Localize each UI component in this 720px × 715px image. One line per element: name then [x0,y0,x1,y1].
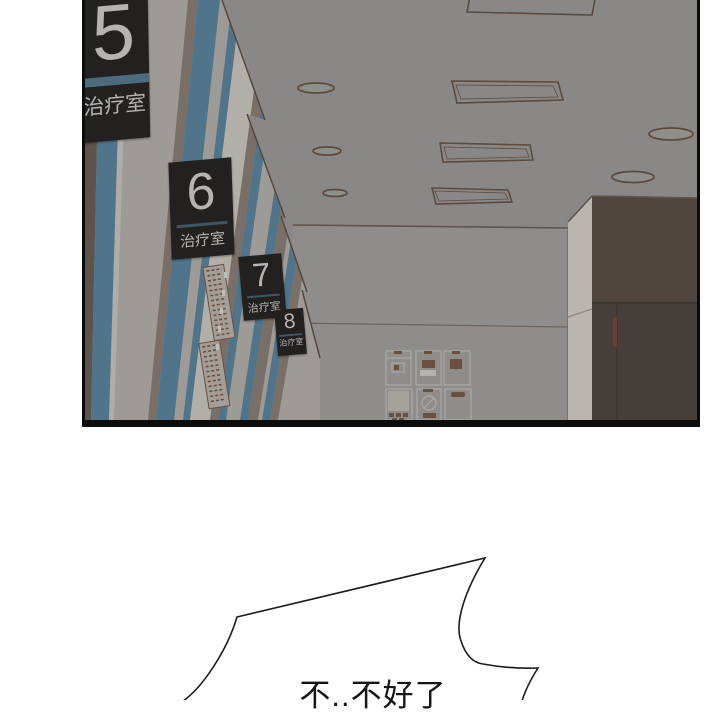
right-brown-wall-lower [592,303,697,420]
door-edge-mark [613,317,617,347]
ceiling-downlight-icon [313,147,341,155]
ceiling-downlight-icon [612,172,654,183]
door-sign-5: 5 治疗室 [82,0,150,143]
door-sign-label: 治疗室 [82,86,150,122]
door-sign-number: 6 [168,157,233,222]
door-sign-number: 5 [82,0,149,77]
comic-page: 5 治疗室 6 治疗室 7 治疗室 8 治疗室 不..不好了 [0,0,720,700]
comic-panel-corridor: 5 治疗室 6 治疗室 7 治疗室 8 治疗室 [82,0,700,427]
door-sign-number: 8 [274,308,305,334]
door-sign-8: 8 治疗室 [274,308,307,356]
ceiling-downlight-icon [323,190,347,197]
corner-wall-highlight [568,196,592,420]
door-sign-6: 6 治疗室 [168,157,234,260]
ceiling-downlight-icon [649,128,693,140]
ceiling-downlight-icon [298,83,334,93]
door-sign-number: 7 [238,253,284,294]
door-sign-label: 治疗室 [276,336,306,349]
door-sign-label: 治疗室 [171,226,234,253]
speech-bubble-text: 不..不好了 [291,670,455,715]
